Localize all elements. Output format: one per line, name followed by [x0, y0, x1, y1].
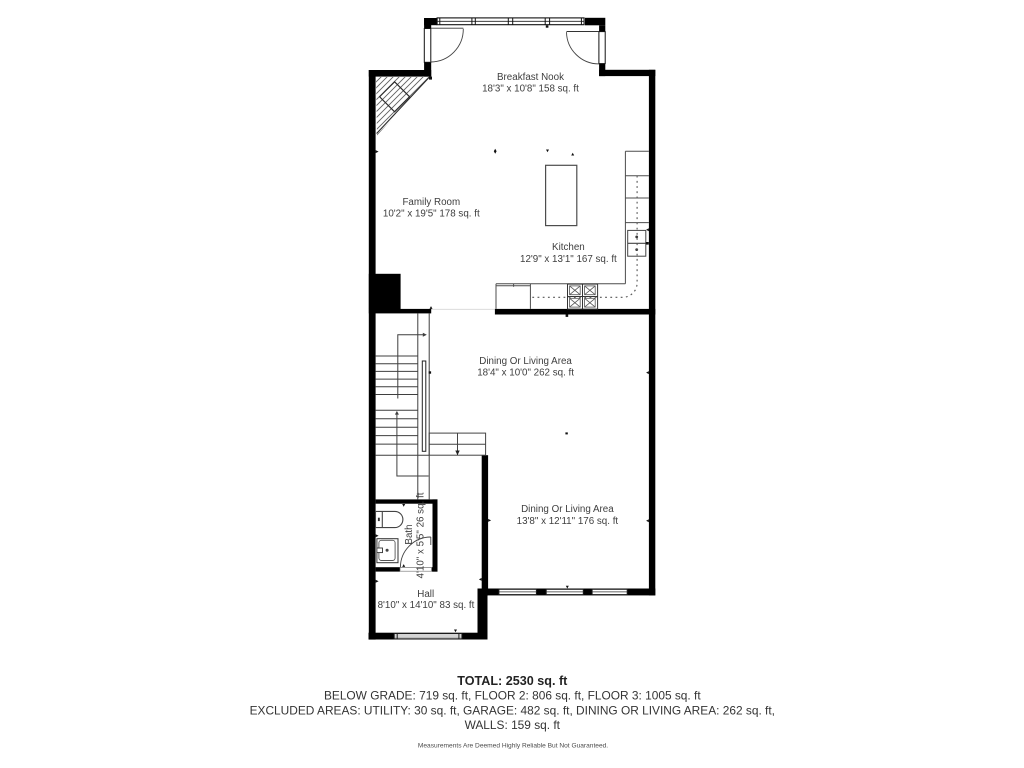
svg-text:Measurements Are Deemed Highly: Measurements Are Deemed Highly Reliable …	[418, 742, 608, 749]
svg-text:4'10" x 5'5" 26 sq. ft: 4'10" x 5'5" 26 sq. ft	[416, 492, 427, 578]
svg-text:Dining Or Living Area: Dining Or Living Area	[479, 356, 572, 367]
svg-text:BELOW GRADE: 719 sq. ft, FLOOR: BELOW GRADE: 719 sq. ft, FLOOR 2: 806 sq…	[324, 688, 701, 702]
svg-text:Kitchen: Kitchen	[552, 242, 585, 253]
svg-text:WALLS: 159 sq. ft: WALLS: 159 sq. ft	[465, 718, 561, 732]
svg-text:18'4" x 10'0" 262 sq. ft: 18'4" x 10'0" 262 sq. ft	[477, 367, 574, 378]
svg-text:Hall: Hall	[417, 589, 434, 600]
svg-text:EXCLUDED AREAS: UTILITY: 30 sq: EXCLUDED AREAS: UTILITY: 30 sq. ft, GARA…	[250, 703, 775, 717]
svg-text:Bath: Bath	[404, 524, 415, 544]
svg-text:TOTAL: 2530 sq. ft: TOTAL: 2530 sq. ft	[457, 674, 568, 688]
svg-text:18'3" x 10'8" 158 sq. ft: 18'3" x 10'8" 158 sq. ft	[482, 83, 579, 94]
svg-text:Breakfast Nook: Breakfast Nook	[497, 72, 564, 83]
svg-text:12'9" x 13'1" 167 sq. ft: 12'9" x 13'1" 167 sq. ft	[520, 254, 617, 265]
svg-text:13'8" x 12'11" 176 sq. ft: 13'8" x 12'11" 176 sq. ft	[517, 516, 619, 527]
svg-text:Family Room: Family Room	[402, 197, 460, 208]
svg-text:10'2" x 19'5" 178 sq. ft: 10'2" x 19'5" 178 sq. ft	[383, 208, 480, 219]
svg-text:Dining Or Living Area: Dining Or Living Area	[521, 504, 614, 515]
svg-text:8'10" x 14'10" 83 sq. ft: 8'10" x 14'10" 83 sq. ft	[378, 600, 475, 611]
